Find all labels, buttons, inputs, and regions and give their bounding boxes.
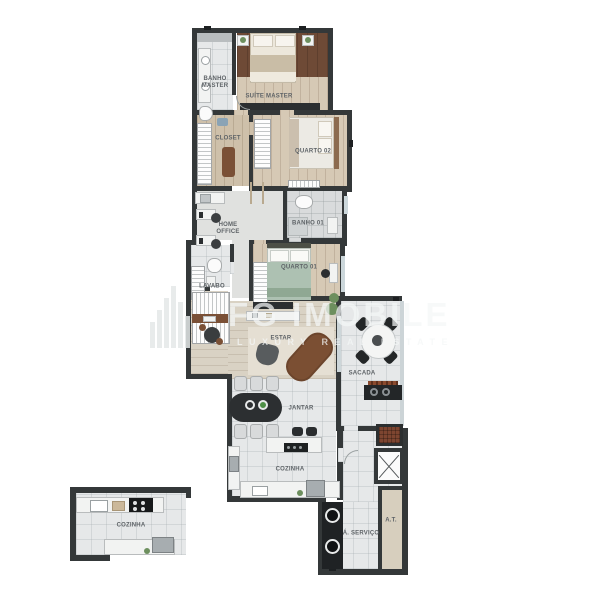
bar-sink (203, 316, 216, 322)
room-label-sacada: SACADA (349, 371, 376, 378)
office-printer (200, 194, 211, 203)
washer-icon (325, 508, 340, 523)
suite-bed-pillow (275, 35, 295, 47)
sliding-glass-door (337, 316, 341, 372)
tv-console (253, 302, 293, 309)
wall-tag (204, 26, 211, 30)
wardrobe (254, 119, 271, 169)
bathroom-vanity (327, 217, 338, 234)
shower-ledge (197, 33, 232, 42)
closet-island (222, 147, 235, 177)
burner-icon (133, 501, 137, 505)
room-label-home-office: HOME OFFICE (216, 222, 239, 236)
quarto01-pillow (290, 250, 309, 262)
microwave (152, 537, 174, 553)
burner-icon (287, 446, 290, 449)
table-centerpiece (372, 335, 383, 346)
door-gap (338, 448, 343, 462)
room-label-jantar: JANTAR (288, 406, 313, 413)
kitchen-sink (90, 500, 108, 512)
wall (249, 186, 283, 191)
logo-bar-icon (164, 298, 169, 348)
wardrobe (253, 262, 268, 304)
door-gap (249, 122, 253, 135)
room-label-estar: ESTAR (271, 336, 292, 343)
place-setting (258, 400, 268, 410)
wall (186, 487, 191, 498)
plant-icon (329, 293, 339, 303)
room-label-quarto01: QUARTO 01 (281, 265, 317, 272)
dining-chair (250, 376, 263, 391)
oven (306, 480, 325, 497)
dining-chair (234, 424, 247, 439)
quarto02-pillow (318, 121, 332, 137)
wall-tag (299, 26, 306, 30)
wall (347, 110, 352, 192)
bistro-chair (199, 324, 206, 331)
decor-item (266, 313, 272, 318)
burner-icon (141, 507, 145, 511)
wall-tag (393, 297, 399, 301)
cutting-board (112, 501, 125, 511)
counter-burner (382, 388, 390, 396)
logo-bar-icon (171, 286, 176, 348)
logo-bar-icon (157, 310, 162, 348)
door-gap (254, 240, 266, 244)
logo-bar-icon (185, 316, 190, 348)
door-gap (234, 110, 248, 115)
plant-icon (297, 490, 303, 496)
door-gap (280, 110, 294, 115)
plant-icon (144, 548, 150, 554)
monitor-icon (199, 212, 203, 218)
wall (328, 28, 333, 115)
floor-candle (262, 182, 264, 204)
place-setting (245, 400, 255, 410)
closet-bench (217, 118, 228, 126)
room-label-closet: CLOSET (215, 136, 241, 143)
room-label-banho01: BANHO 01 (292, 221, 324, 228)
office-chair (211, 239, 221, 249)
closet-shelving (197, 123, 212, 185)
window (344, 196, 348, 214)
window (341, 256, 345, 292)
churrasqueira-grill (376, 424, 403, 446)
door-gap (289, 238, 301, 242)
wall (232, 33, 236, 95)
wall-tag (349, 140, 353, 147)
plant-icon (240, 37, 246, 43)
wall (192, 110, 348, 115)
headboard (334, 117, 339, 169)
wall (283, 186, 287, 242)
toilet (295, 195, 313, 209)
dining-chair (266, 376, 279, 391)
corridor-floor (232, 191, 249, 298)
suite-bed-pillow (253, 35, 273, 47)
at-floor (382, 490, 402, 570)
logo-bar-icon (150, 322, 155, 348)
quarto01-pillow (270, 250, 289, 262)
bar-stool (292, 427, 303, 436)
dryer-icon (325, 539, 340, 554)
room-label-banho-master: BANHO MASTER (202, 76, 229, 90)
dining-table (229, 393, 282, 422)
toilet (207, 258, 222, 273)
burner-icon (141, 501, 145, 505)
suite-bed-blanket (250, 55, 296, 72)
floor-plan-canvas: BANHO MASTER SUÍTE MASTER CLOSET QUARTO … (0, 0, 600, 600)
door-gap (230, 262, 234, 274)
dining-chair (250, 424, 263, 439)
logo-bar-icon (178, 302, 183, 348)
burner-icon (293, 446, 296, 449)
quarto02-dresser (288, 180, 320, 188)
desk (329, 263, 338, 283)
bar-stool (306, 427, 317, 436)
sink-basin (201, 56, 210, 65)
toilet (199, 106, 213, 121)
quarto01-bed-runner (267, 288, 311, 297)
bistro-chair (216, 338, 223, 345)
plant-icon (305, 37, 311, 43)
wall (186, 240, 191, 379)
quarto02-bed-blanket (289, 119, 299, 167)
burner-icon (133, 507, 137, 511)
wall (70, 555, 110, 561)
room-label-suite-master: SUÍTE MASTER (245, 94, 292, 101)
duct-shaft (374, 448, 404, 484)
decor-item (252, 313, 258, 318)
room-label-cozinha: COZINHA (276, 467, 305, 474)
room-label-cozinha-detail: COZINHA (117, 523, 146, 530)
floor-candle (250, 182, 252, 204)
room-label-lavabo: LAVABO (199, 284, 225, 291)
wall (70, 487, 191, 493)
burner-icon (299, 446, 302, 449)
dining-chair (234, 376, 247, 391)
room-label-quarto02: QUARTO 02 (295, 149, 331, 156)
monitor-icon (199, 238, 203, 244)
room-label-servico: Á. SERVIÇO (343, 531, 380, 538)
balcony-glass-railing (400, 301, 404, 426)
chair (321, 269, 330, 278)
suite-bed-throw (250, 72, 296, 81)
plant-icon (326, 303, 338, 315)
room-label-at: A.T. (385, 518, 396, 525)
wall (186, 374, 232, 379)
wall (192, 186, 232, 191)
counter-sink (370, 388, 378, 396)
kitchen-sink (252, 486, 268, 496)
suite-dresser (240, 103, 320, 110)
door-gap (344, 426, 358, 431)
refrigerator (229, 456, 239, 472)
